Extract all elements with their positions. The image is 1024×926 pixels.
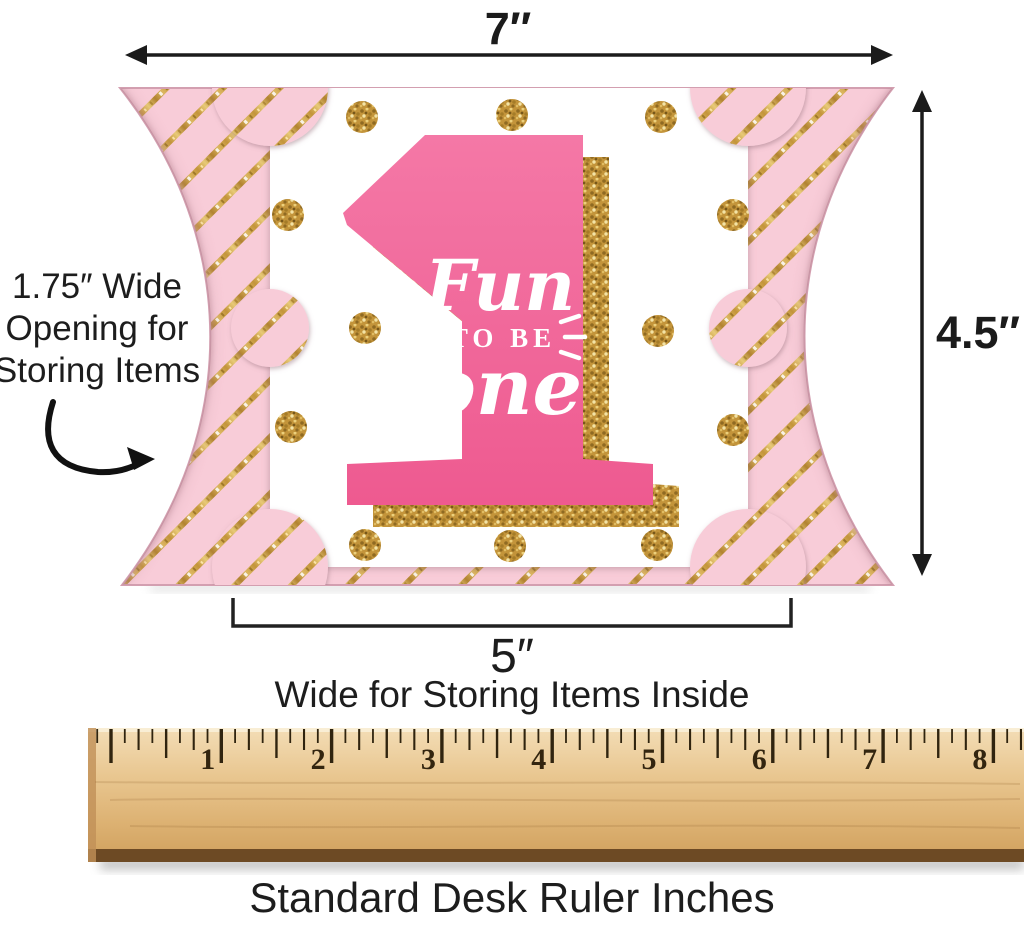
bottom-width-annotation: 5″ Wide for Storing Items Inside	[233, 598, 791, 715]
ruler-caption: Standard Desk Ruler Inches	[249, 874, 774, 921]
product-diagram-canvas: Fun TO BE one 7″ 4.5″ 1.75″ Wide Opening…	[0, 0, 1024, 926]
width-arrowhead-left	[125, 45, 147, 65]
opening-line-3: Storing Items	[0, 351, 200, 390]
ruler-number: 1	[200, 743, 215, 776]
ruler-number: 3	[421, 743, 436, 776]
bottom-bracket	[233, 598, 791, 626]
width-arrowhead-right	[871, 45, 893, 65]
right-closure-tab	[709, 289, 787, 367]
left-closure-tab	[231, 289, 309, 367]
height-arrowhead-bottom	[912, 554, 932, 576]
diagram-svg: Fun TO BE one 7″ 4.5″ 1.75″ Wide Opening…	[0, 0, 1024, 926]
word-one: one	[424, 342, 582, 433]
height-arrowhead-top	[912, 90, 932, 112]
inner-width-caption: Wide for Storing Items Inside	[274, 674, 749, 715]
opening-line-1: 1.75″ Wide	[12, 267, 182, 306]
ruler-left-end	[88, 728, 96, 862]
ruler-bottom-edge	[88, 849, 1024, 862]
height-label: 4.5″	[936, 307, 1020, 358]
ruler-number: 5	[642, 743, 657, 776]
opening-annotation: 1.75″ Wide Opening for Storing Items	[0, 267, 200, 472]
opening-line-2: Opening for	[6, 309, 189, 348]
height-annotation: 4.5″	[912, 90, 1020, 576]
width-annotation: 7″	[125, 3, 893, 65]
ruler-number: 2	[311, 743, 326, 776]
opening-curved-arrow	[48, 402, 138, 472]
width-label: 7″	[485, 3, 532, 54]
word-fun: Fun	[423, 244, 575, 327]
ruler-number: 8	[972, 743, 987, 776]
pillow-box: Fun TO BE one	[120, 30, 893, 625]
ruler-number: 6	[752, 743, 767, 776]
ruler: 12345678	[88, 728, 1024, 870]
ruler-number: 7	[862, 743, 877, 776]
ruler-number: 4	[531, 743, 546, 776]
